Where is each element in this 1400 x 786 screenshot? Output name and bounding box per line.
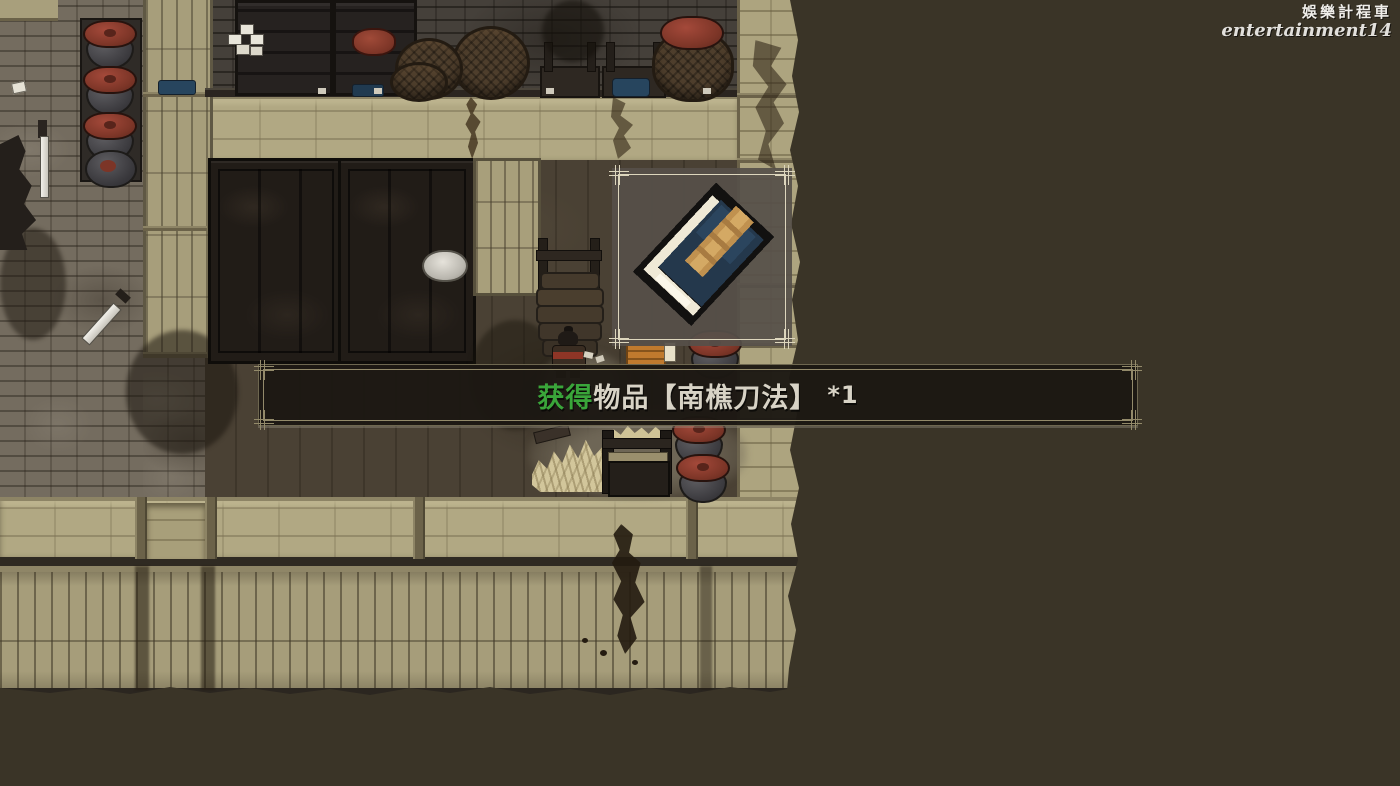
chair-foot-dot-3: [546, 88, 554, 94]
woven-stool-3: [390, 62, 448, 102]
wardrobe-panels: [218, 169, 334, 353]
storage-jar-1: [83, 20, 137, 70]
plank-post-shadow-a: [135, 566, 149, 690]
character-red-sash: [553, 352, 583, 359]
banner-corner-ornament-tr: [1122, 360, 1142, 380]
plank-wall-bottom: [0, 566, 803, 702]
dropped-sword-blade: [40, 136, 49, 198]
trough-crossbar: [602, 438, 672, 449]
topwall-stain: [542, 0, 604, 62]
bottom-jar-2: [676, 454, 730, 502]
white-flower-cluster: [226, 24, 270, 58]
plank-post-shadow-c: [700, 566, 712, 690]
pack-basket-crossbar: [536, 250, 602, 261]
watermark-cn: 娛樂計程車: [1221, 4, 1392, 21]
left-wall-column: [143, 0, 213, 358]
loot-notification-banner: 获得物品【南樵刀法】*1: [258, 364, 1138, 426]
folding-screen: [473, 158, 541, 296]
white-bowl: [422, 250, 468, 282]
jar-red-lid: [83, 66, 137, 94]
wall-post-c: [413, 497, 425, 559]
chair-foot-dot-2: [374, 88, 382, 94]
blade-manual-book-icon: [627, 181, 777, 331]
fog-bottom: [0, 702, 806, 786]
banner-corner-ornament-bl: [254, 410, 274, 430]
banner-text: 获得物品【南樵刀法】*1: [259, 365, 1137, 425]
wall-post-b: [205, 497, 217, 559]
jar-red-lid: [676, 454, 730, 482]
trough-box: [608, 461, 670, 497]
jar-red-lid: [83, 112, 137, 140]
banner-corner-ornament-br: [1122, 410, 1142, 430]
jar-red-lid: [83, 20, 137, 48]
basket-red-lid: [660, 16, 724, 50]
stain-dot-2: [632, 660, 638, 665]
stain-dot-1: [600, 650, 607, 656]
wardrobe-left: [208, 158, 344, 364]
watermark-en: entertainment14: [1221, 21, 1392, 42]
banner-corner-ornament-tl: [254, 360, 274, 380]
popup-corner-ornament-tr: [775, 165, 795, 185]
blue-cloth-1: [612, 78, 650, 97]
stain-dot-3: [582, 638, 588, 643]
chair-foot-dot-1: [318, 88, 326, 94]
wall-cap-topleft: [0, 0, 58, 21]
meat-on-table: [352, 28, 396, 56]
game-viewport[interactable]: 获得物品【南樵刀法】*1 娛樂計程車 entertainment14: [0, 0, 1400, 786]
character-head: [558, 331, 578, 346]
banner-text-item: 物品【南樵刀法】: [593, 376, 817, 415]
storage-jar-2: [83, 66, 137, 116]
item-popup-panel: [612, 168, 792, 346]
plank-post-shadow-b: [201, 566, 215, 690]
popup-corner-ornament-bl: [609, 329, 629, 349]
popup-corner-ornament-br: [775, 329, 795, 349]
wall-post-a: [135, 497, 147, 559]
watermark: 娛樂計程車 entertainment14: [1221, 4, 1392, 42]
door-recess: [147, 503, 205, 559]
wall-post-d: [686, 497, 698, 559]
woven-stool-2: [452, 26, 530, 100]
left-wall-joint-2: [143, 226, 207, 231]
gray-pot-red-mark: [100, 160, 116, 172]
blue-cloth-2: [158, 80, 196, 95]
popup-corner-ornament-tl: [609, 165, 629, 185]
banner-text-count: *1: [827, 381, 858, 409]
banner-text-obtained: 获得: [537, 376, 593, 415]
chair-foot-dot-4: [703, 88, 711, 94]
